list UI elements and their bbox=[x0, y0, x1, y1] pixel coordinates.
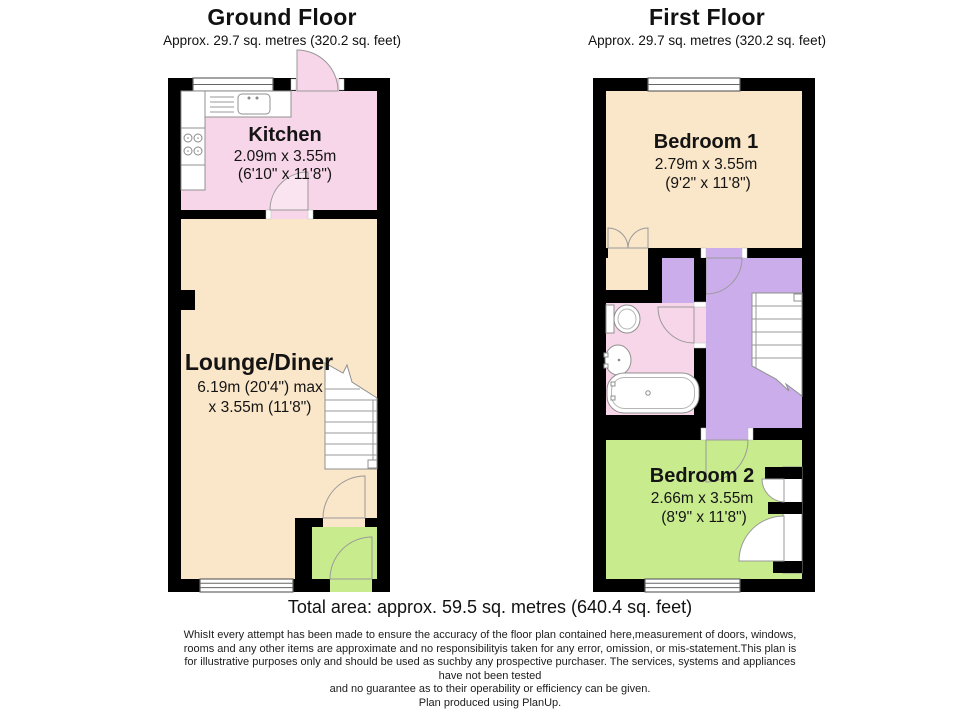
bedroom2-window bbox=[645, 579, 740, 592]
first-floor-plan: Bedroom 1 2.79m x 3.55m (9'2" x 11'8") B… bbox=[590, 48, 824, 598]
bathtub-icon bbox=[607, 373, 699, 413]
lounge-dims-line1: 6.19m (20'4") max bbox=[197, 379, 323, 396]
kitchen-dims-metric: 2.09m x 3.55m bbox=[234, 148, 337, 165]
bedroom1-window bbox=[648, 78, 740, 91]
bedroom1-bottom-wall bbox=[606, 248, 802, 258]
disclaimer-line: rooms and any other items are approximat… bbox=[0, 643, 980, 657]
bedroom2-dims-metric: 2.66m x 3.55m bbox=[651, 490, 754, 507]
floor-plan-page: Ground Floor Approx. 29.7 sq. metres (32… bbox=[0, 0, 980, 712]
bedroom2-dims-imperial: (8'9" x 11'8") bbox=[661, 509, 747, 526]
kitchen-dims-imperial: (6'10" x 11'8") bbox=[238, 166, 332, 183]
disclaimer-line: WhisIt every attempt has been made to en… bbox=[0, 629, 980, 643]
total-area-text: Total area: approx. 59.5 sq. metres (640… bbox=[0, 597, 980, 618]
ground-floor-plan: Kitchen 2.09m x 3.55m (6'10" x 11'8") Lo… bbox=[163, 48, 397, 598]
bedroom2-label: Bedroom 2 bbox=[650, 465, 754, 487]
kitchen-label: Kitchen bbox=[248, 124, 321, 146]
sink-icon bbox=[238, 94, 270, 114]
bedroom1-dims-metric: 2.79m x 3.55m bbox=[655, 156, 758, 173]
ground-floor-header: Ground Floor Approx. 29.7 sq. metres (32… bbox=[122, 4, 442, 48]
disclaimer-line: have not been tested bbox=[0, 670, 980, 684]
toilet-icon bbox=[606, 305, 640, 333]
first-floor-title: First Floor bbox=[547, 4, 867, 31]
plan-credit: Plan produced using PlanUp. bbox=[0, 697, 980, 711]
exterior-door-arc bbox=[297, 50, 338, 91]
lounge-wall-stub bbox=[168, 290, 195, 310]
ground-floor-title: Ground Floor bbox=[122, 4, 442, 31]
bedroom1-dims-imperial: (9'2" x 11'8") bbox=[665, 175, 751, 192]
lounge-label: Lounge/Diner bbox=[185, 349, 333, 375]
kitchen-exterior-door bbox=[291, 50, 344, 91]
bedroom2-top-wall bbox=[606, 428, 802, 440]
disclaimer-line: for illustrative purposes only and shoul… bbox=[0, 656, 980, 670]
hob-icon bbox=[181, 128, 205, 165]
bedroom1-label: Bedroom 1 bbox=[654, 131, 758, 153]
lounge-window bbox=[200, 579, 293, 592]
first-floor-header: First Floor Approx. 29.7 sq. metres (320… bbox=[547, 4, 867, 48]
lounge-dims-line2: x 3.55m (11'8") bbox=[209, 399, 312, 416]
ground-floor-area: Approx. 29.7 sq. metres (320.2 sq. feet) bbox=[122, 33, 442, 48]
kitchen-window bbox=[193, 78, 273, 91]
first-floor-area: Approx. 29.7 sq. metres (320.2 sq. feet) bbox=[547, 33, 867, 48]
disclaimer-block: WhisIt every attempt has been made to en… bbox=[0, 629, 980, 711]
disclaimer-line: and no guarantee as to their operability… bbox=[0, 683, 980, 697]
